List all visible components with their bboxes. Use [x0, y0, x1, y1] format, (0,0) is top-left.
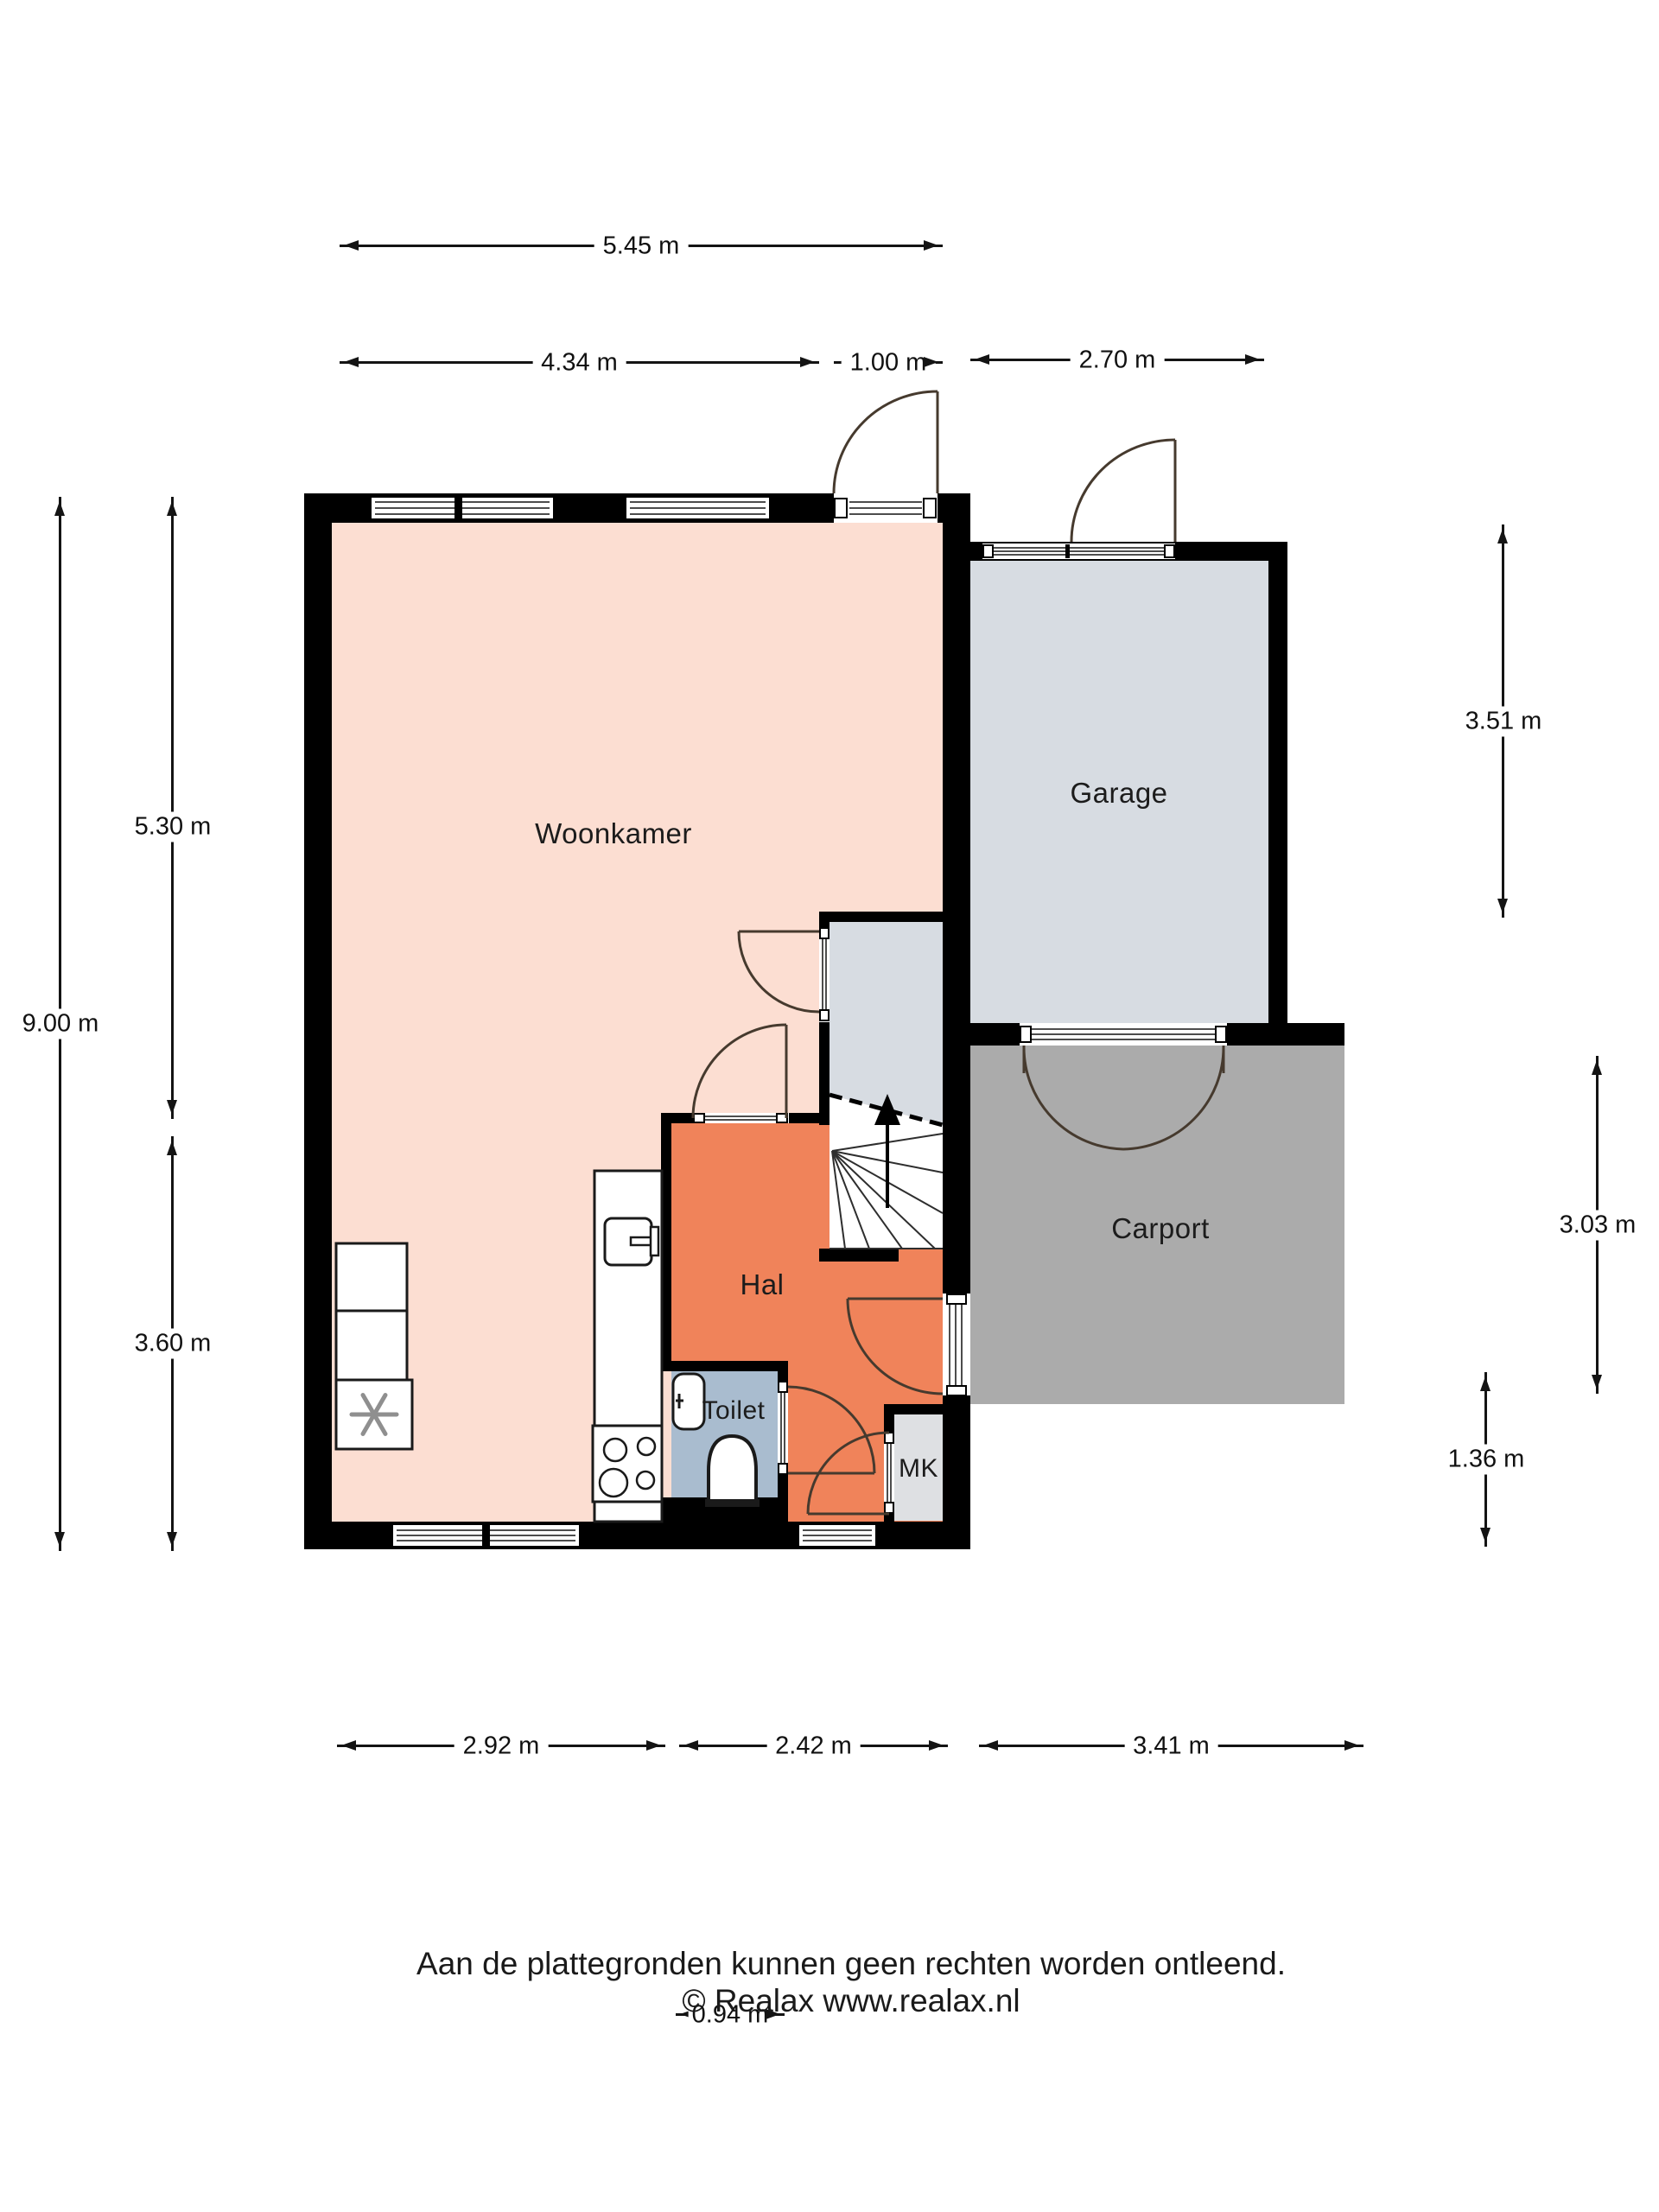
dim-bottom-kitchen: 2.92 m [337, 1745, 665, 1747]
wall-vestibule-top [819, 912, 943, 922]
dim-left-lower-label: 3.60 m [126, 1329, 220, 1359]
window-top-left [372, 498, 553, 518]
dim-right-lower-label: 1.36 m [1440, 1445, 1534, 1475]
dim-bottom-hal: 2.42 m [679, 1745, 948, 1747]
door-opening-front [943, 1294, 970, 1395]
window-bottom-left [393, 1525, 579, 1546]
footer-copyright: © Realax www.realax.nl [682, 1983, 1020, 2019]
label-garage: Garage [1070, 777, 1167, 810]
door-opening-hal [693, 1113, 789, 1123]
dim-right-garage-label: 3.51 m [1457, 706, 1551, 736]
dim-left-lower: 3.60 m [171, 1136, 174, 1551]
window-top-right [626, 498, 769, 518]
dim-top-garage: 2.70 m [970, 359, 1264, 361]
kitchen-faucet-handle-icon [651, 1227, 658, 1255]
dim-right-garage: 3.51 m [1502, 524, 1504, 918]
door-opening-vestibule [819, 927, 829, 1022]
dim-left-upper-label: 5.30 m [126, 811, 220, 842]
dim-right-carport: 3.03 m [1596, 1056, 1599, 1394]
dim-left-upper: 5.30 m [171, 497, 174, 1119]
label-woonkamer: Woonkamer [535, 817, 692, 850]
door-arc-back [834, 391, 938, 493]
dim-top-left: 4.34 m [340, 361, 819, 364]
dim-top-total: 5.45 m [340, 245, 943, 247]
door-opening-back [834, 493, 938, 523]
toilet-cistern [705, 1499, 760, 1507]
dim-bottom-kitchen-label: 2.92 m [454, 1732, 549, 1762]
door-opening-garage [982, 543, 1175, 559]
counter-unit-2 [336, 1311, 407, 1380]
dim-left-total: 9.00 m [59, 497, 61, 1551]
footer-disclaimer: Aan de plattegronden kunnen geen rechten… [416, 1946, 1286, 1982]
dim-top-door-label: 1.00 m [842, 348, 936, 378]
dim-right-carport-label: 3.03 m [1551, 1210, 1645, 1240]
wall-toilet-top [661, 1361, 788, 1371]
door-arc-garage [1071, 440, 1175, 542]
wall-garage-right [1268, 542, 1287, 1046]
dim-right-lower: 1.36 m [1484, 1372, 1487, 1547]
dim-top-door: 1.00 m [834, 361, 943, 364]
door-opening-carport [1020, 1023, 1227, 1046]
toilet-bowl [709, 1436, 756, 1501]
wall-mk-top [884, 1404, 943, 1414]
dim-bottom-carport: 3.41 m [979, 1745, 1363, 1747]
floorplan-page: Woonkamer Garage Carport Hal Toilet MK 5… [0, 0, 1659, 2212]
label-carport: Carport [1111, 1212, 1210, 1245]
label-toilet: Toilet [702, 1396, 765, 1426]
label-hal: Hal [740, 1268, 784, 1301]
door-opening-toilet [778, 1381, 788, 1475]
floorplan-drawing [0, 0, 1659, 2212]
dim-left-total-label: 9.00 m [14, 1009, 108, 1039]
window-bottom-hal [799, 1525, 875, 1546]
dim-top-garage-label: 2.70 m [1071, 346, 1165, 376]
wall-stairs-stub [819, 1249, 899, 1262]
vestibule-floor [829, 922, 943, 1125]
dim-bottom-hal-label: 2.42 m [766, 1732, 861, 1762]
door-opening-mk [884, 1432, 894, 1514]
dim-bottom-carport-label: 3.41 m [1124, 1732, 1218, 1762]
dim-top-left-label: 4.34 m [532, 348, 626, 378]
counter-unit-1 [336, 1243, 407, 1311]
label-mk: MK [899, 1454, 938, 1484]
wall-left [304, 493, 332, 1549]
dim-top-total-label: 5.45 m [594, 232, 689, 262]
